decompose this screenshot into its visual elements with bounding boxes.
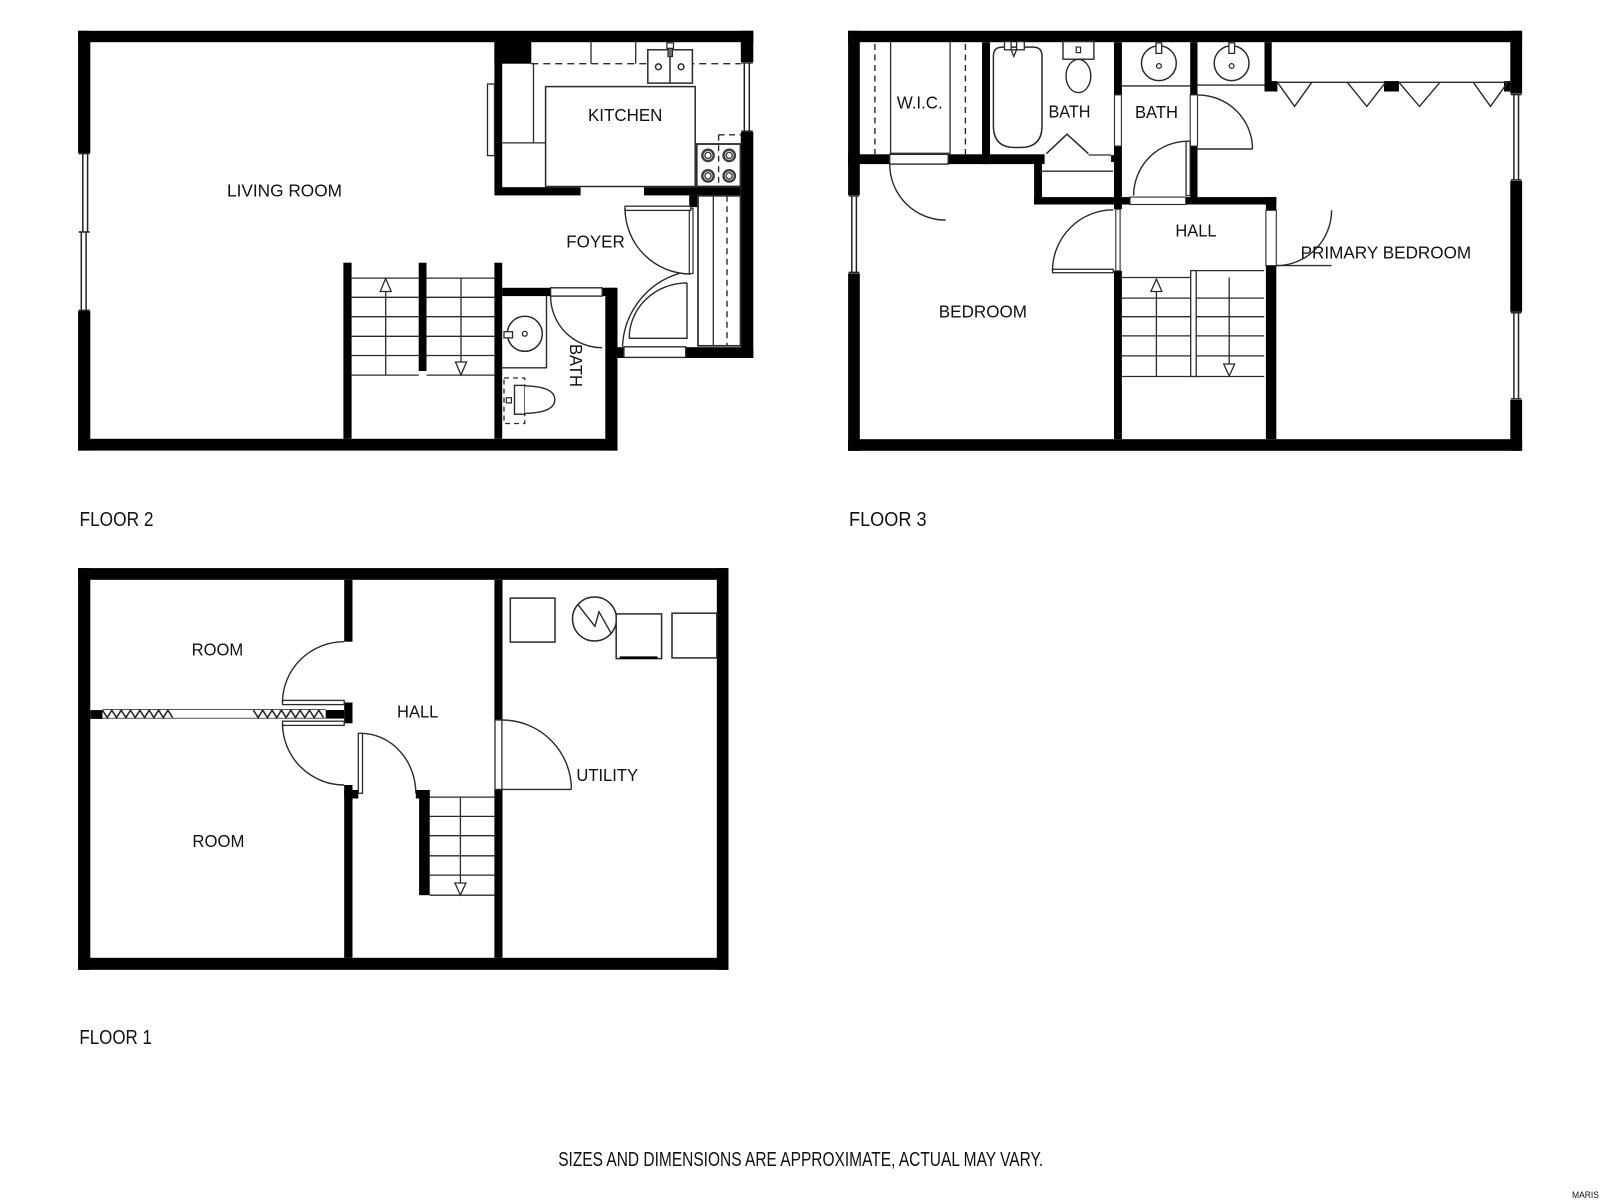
svg-text:BEDROOM: BEDROOM bbox=[939, 301, 1027, 321]
svg-text:ROOM: ROOM bbox=[192, 639, 244, 659]
svg-text:PRIMARY BEDROOM: PRIMARY BEDROOM bbox=[1301, 242, 1472, 262]
svg-text:BATH: BATH bbox=[566, 344, 586, 387]
svg-text:HALL: HALL bbox=[1175, 221, 1216, 241]
svg-text:MARIS: MARIS bbox=[1572, 1190, 1599, 1200]
svg-text:LIVING ROOM: LIVING ROOM bbox=[227, 181, 342, 201]
svg-text:BATH: BATH bbox=[1135, 102, 1178, 122]
svg-text:FLOOR 2: FLOOR 2 bbox=[80, 509, 154, 531]
svg-text:KITCHEN: KITCHEN bbox=[588, 105, 662, 125]
svg-text:FLOOR 1: FLOOR 1 bbox=[79, 1027, 151, 1049]
svg-text:FLOOR 3: FLOOR 3 bbox=[849, 509, 927, 531]
svg-text:ROOM: ROOM bbox=[192, 831, 244, 851]
svg-text:W.I.C.: W.I.C. bbox=[897, 93, 943, 113]
svg-text:SIZES AND DIMENSIONS ARE APPRO: SIZES AND DIMENSIONS ARE APPROXIMATE, AC… bbox=[558, 1149, 1043, 1171]
svg-text:HALL: HALL bbox=[397, 701, 439, 721]
svg-text:UTILITY: UTILITY bbox=[576, 765, 638, 785]
svg-text:FOYER: FOYER bbox=[566, 232, 625, 252]
svg-text:BATH: BATH bbox=[1049, 102, 1091, 122]
